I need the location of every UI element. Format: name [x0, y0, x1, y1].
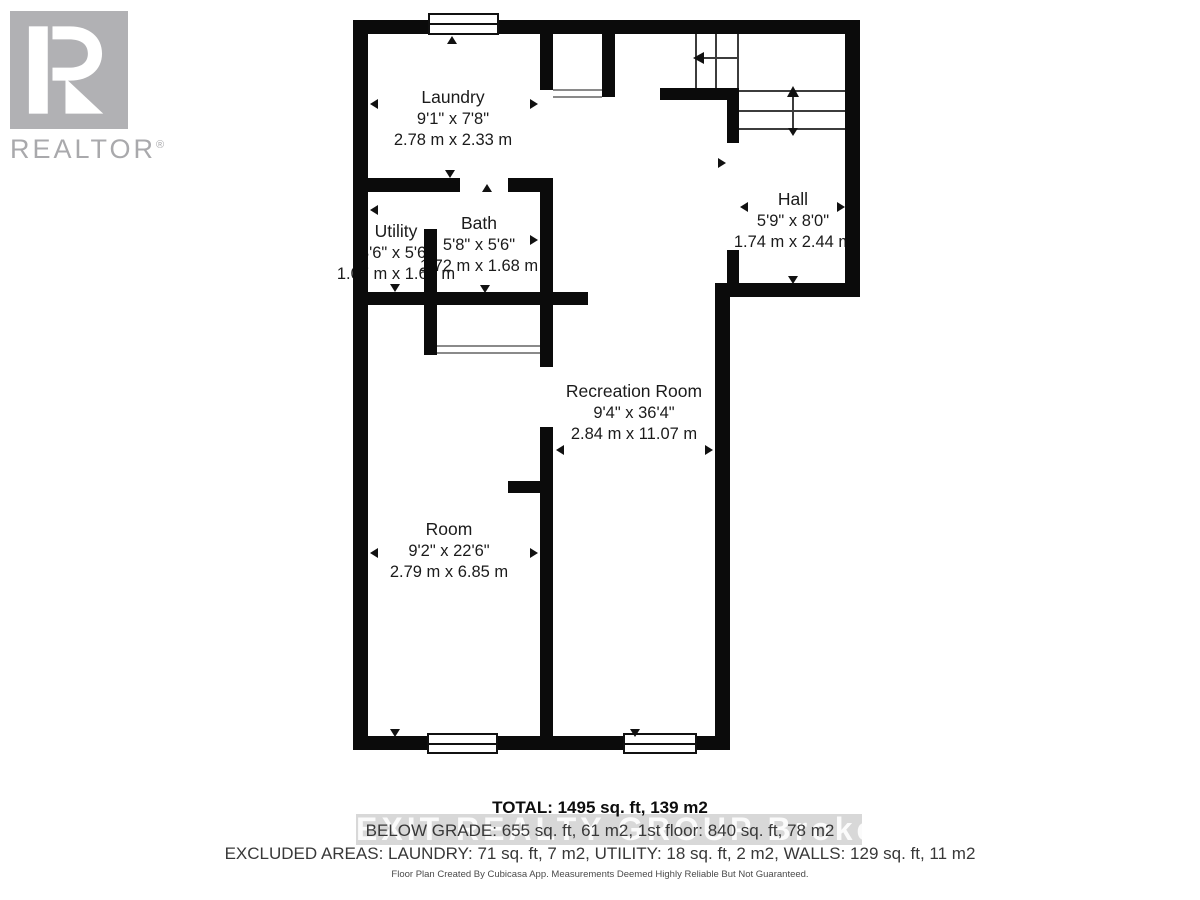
- wall-nook-right: [602, 27, 615, 97]
- total-area-text: TOTAL: 1495 sq. ft, 139 m2: [0, 796, 1200, 819]
- stair-direction-line: [703, 57, 739, 59]
- room-dim-metric: 1.72 m x 1.68 m: [420, 256, 538, 277]
- wall-outer-right-upper: [845, 20, 860, 297]
- realtor-r-icon: [10, 8, 128, 132]
- room-label-room: Room 9'2" x 22'6" 2.79 m x 6.85 m: [390, 518, 508, 583]
- room-dim-imperial: 9'1" x 7'8": [394, 109, 512, 130]
- stair-direction-line: [792, 94, 794, 130]
- stair-arrow-base-icon: [788, 128, 798, 136]
- area-summary: TOTAL: 1495 sq. ft, 139 m2 BELOW GRADE: …: [0, 796, 1200, 865]
- opening-closet: [437, 345, 540, 354]
- stair-arrow-up-icon: [787, 86, 799, 97]
- window-pane-line: [430, 23, 497, 25]
- measure-tick-icon: [480, 285, 490, 293]
- measure-tick-icon: [530, 99, 538, 109]
- room-name: Bath: [420, 212, 538, 235]
- wall-room-top: [353, 292, 588, 305]
- excluded-area-text: EXCLUDED AREAS: LAUNDRY: 71 sq. ft, 7 m2…: [0, 842, 1200, 865]
- room-dim-metric: 1.74 m x 2.44 m: [734, 232, 852, 253]
- disclaimer-text: Floor Plan Created By Cubicasa App. Meas…: [0, 869, 1200, 880]
- floor-plan-page: REALTOR®: [0, 0, 1200, 900]
- measure-tick-icon: [530, 548, 538, 558]
- stair-tread: [737, 33, 739, 90]
- stair-arrow-left-icon: [693, 52, 704, 64]
- measure-tick-icon: [370, 205, 378, 215]
- measure-tick-icon: [445, 170, 455, 178]
- room-label-recreation: Recreation Room 9'4" x 36'4" 2.84 m x 11…: [566, 380, 702, 445]
- registered-mark: ®: [156, 139, 167, 151]
- stair-tread: [715, 33, 717, 90]
- room-label-laundry: Laundry 9'1" x 7'8" 2.78 m x 2.33 m: [394, 86, 512, 151]
- wall-laundry-bottom-left: [353, 178, 460, 192]
- measure-tick-icon: [556, 445, 564, 455]
- wall-room-stub: [508, 481, 541, 493]
- room-name: Hall: [734, 188, 852, 211]
- opening-nook: [553, 89, 602, 98]
- measure-tick-icon: [390, 729, 400, 737]
- measure-tick-icon: [630, 729, 640, 737]
- wall-center-lower: [540, 427, 553, 736]
- room-dim-imperial: 9'4" x 36'4": [566, 403, 702, 424]
- window-pane-line: [429, 743, 496, 745]
- room-name: Laundry: [394, 86, 512, 109]
- room-label-hall: Hall 5'9" x 8'0" 1.74 m x 2.44 m: [734, 188, 852, 253]
- measure-tick-icon: [390, 284, 400, 292]
- measure-tick-icon: [370, 548, 378, 558]
- wall-stair-vertical: [727, 88, 739, 143]
- realtor-logo: REALTOR®: [10, 8, 128, 165]
- wall-outer-left: [353, 20, 368, 750]
- wall-outer-right-lower: [715, 283, 730, 750]
- measure-tick-icon: [740, 202, 748, 212]
- window-top: [428, 13, 499, 35]
- wall-center-top: [540, 20, 553, 90]
- room-dim-metric: 2.84 m x 11.07 m: [566, 424, 702, 445]
- measure-tick-icon: [482, 184, 492, 192]
- measure-tick-icon: [788, 276, 798, 284]
- room-label-bath: Bath 5'8" x 5'6" 1.72 m x 1.68 m: [420, 212, 538, 277]
- room-dim-imperial: 5'8" x 5'6": [420, 235, 538, 256]
- window-bottom-left: [427, 733, 498, 754]
- room-name: Room: [390, 518, 508, 541]
- measure-tick-icon: [705, 445, 713, 455]
- measure-tick-icon: [447, 36, 457, 44]
- room-dim-metric: 2.78 m x 2.33 m: [394, 130, 512, 151]
- measure-tick-icon: [718, 158, 726, 168]
- wall-hall-left: [727, 250, 739, 297]
- realtor-wordmark: REALTOR®: [10, 134, 128, 165]
- measure-tick-icon: [837, 202, 845, 212]
- measure-tick-icon: [370, 99, 378, 109]
- measure-tick-icon: [530, 235, 538, 245]
- room-dim-imperial: 5'9" x 8'0": [734, 211, 852, 232]
- grade-area-text: BELOW GRADE: 655 sq. ft, 61 m2, 1st floo…: [0, 819, 1200, 842]
- room-name: Recreation Room: [566, 380, 702, 403]
- window-pane-line: [625, 743, 695, 745]
- wall-center-mid: [540, 178, 553, 367]
- room-dim-imperial: 9'2" x 22'6": [390, 541, 508, 562]
- room-dim-metric: 2.79 m x 6.85 m: [390, 562, 508, 583]
